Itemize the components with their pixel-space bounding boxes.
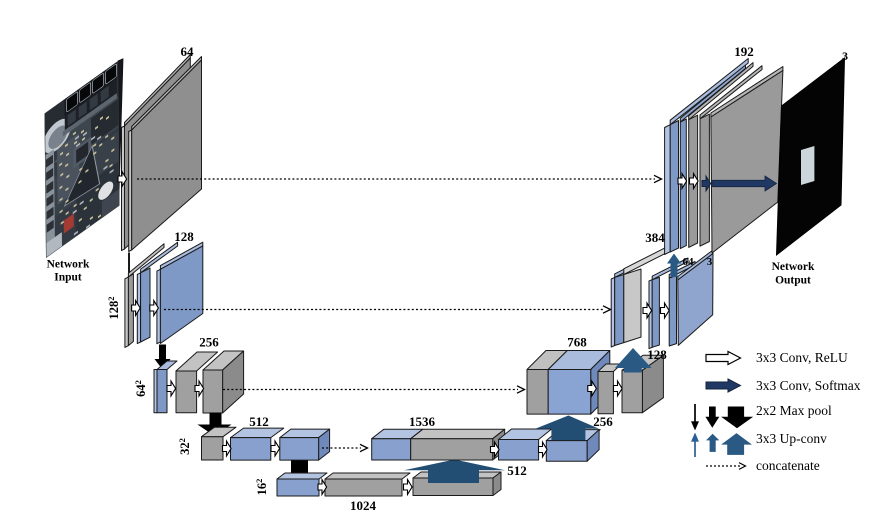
- svg-text:768: 768: [567, 335, 587, 350]
- svg-text:3x3 Conv, Softmax: 3x3 Conv, Softmax: [756, 378, 861, 393]
- svg-text:3x3 Up-conv: 3x3 Up-conv: [756, 431, 827, 446]
- svg-text:128: 128: [174, 229, 194, 244]
- svg-text:512: 512: [249, 414, 269, 429]
- svg-text:Network: Network: [47, 259, 90, 271]
- svg-text:Output: Output: [775, 275, 811, 287]
- svg-text:1536: 1536: [409, 414, 436, 429]
- svg-text:2x2 Max pool: 2x2 Max pool: [756, 403, 832, 418]
- svg-text:Network: Network: [772, 261, 815, 273]
- svg-text:64: 64: [683, 256, 695, 268]
- svg-text:concatenate: concatenate: [756, 458, 820, 473]
- svg-text:192: 192: [734, 44, 754, 59]
- svg-text:256: 256: [593, 414, 613, 429]
- svg-text:256: 256: [199, 335, 219, 350]
- svg-text:512: 512: [507, 463, 527, 478]
- svg-text:Input: Input: [54, 272, 82, 284]
- svg-text:64: 64: [181, 44, 195, 59]
- svg-text:384: 384: [645, 230, 665, 245]
- svg-text:3: 3: [842, 49, 848, 63]
- svg-text:1024: 1024: [350, 498, 377, 513]
- svg-text:128: 128: [647, 347, 667, 362]
- svg-text:3: 3: [707, 256, 713, 268]
- svg-text:3x3 Conv, ReLU: 3x3 Conv, ReLU: [756, 350, 848, 365]
